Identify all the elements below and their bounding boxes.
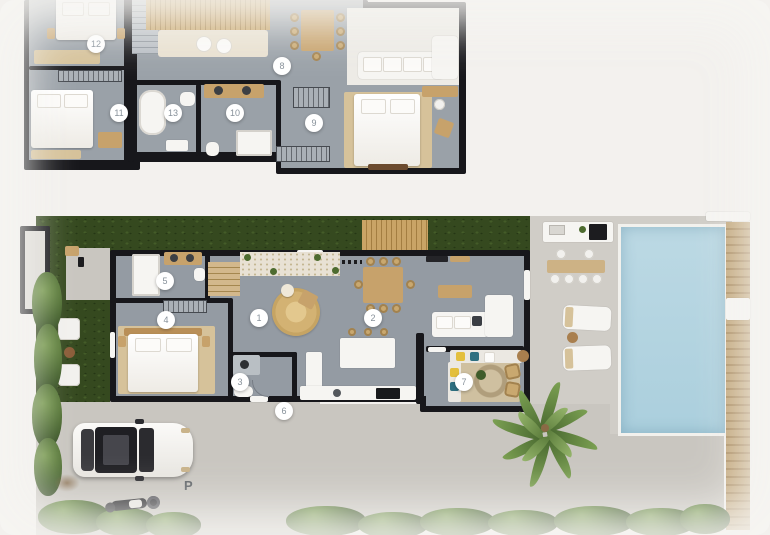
sun-lounger [563, 345, 612, 371]
basin [186, 254, 194, 262]
room-marker-5: 5 [156, 272, 174, 290]
bathtub [139, 90, 166, 135]
bush [488, 510, 558, 535]
dirt-patch [54, 474, 80, 492]
chair [290, 13, 299, 22]
chair [392, 304, 401, 313]
bar-stool [380, 328, 388, 336]
chair [379, 304, 388, 313]
car-windshield [139, 428, 154, 472]
gate-step [65, 246, 79, 256]
car-rear-window [81, 429, 94, 471]
bush [420, 508, 495, 535]
pillow [135, 338, 161, 352]
plant [579, 226, 586, 233]
shower [236, 130, 272, 156]
sun-lounger [562, 305, 611, 331]
tv [426, 256, 448, 262]
room-marker-3: 3 [231, 373, 249, 391]
wardrobe [58, 70, 122, 82]
nightstand [47, 28, 55, 39]
plant [332, 267, 339, 274]
outdoor-chair [550, 274, 560, 284]
staircase [208, 262, 240, 296]
sofa [432, 312, 488, 337]
moto-front-wheel [146, 495, 160, 509]
room-marker-4: 4 [157, 311, 175, 329]
ground-floor-plan: P 5 4 1 2 3 6 7 [18, 212, 752, 535]
room-marker-11: 11 [110, 104, 128, 122]
coffee-table [438, 285, 472, 298]
outdoor-sofa [450, 350, 522, 363]
kitchen-sink [333, 389, 341, 397]
cooktop [376, 388, 400, 399]
bar-stool [348, 328, 356, 336]
bench [31, 150, 81, 159]
nightstand [202, 336, 210, 347]
lamp-post [78, 257, 84, 267]
room-marker-10: 10 [226, 104, 244, 122]
room-marker-7: 7 [455, 373, 473, 391]
floor-plan-canvas: 12 11 13 10 8 9 [0, 0, 770, 535]
bush [554, 506, 634, 535]
deck-louvres [146, 0, 270, 30]
bench [368, 164, 408, 170]
side-table [567, 332, 578, 343]
boundary-wall [706, 212, 750, 221]
wall [416, 333, 424, 404]
outdoor-chair [592, 274, 602, 284]
cushion [454, 316, 471, 329]
chair [336, 13, 345, 22]
pillow [37, 94, 61, 108]
car-headlight [181, 467, 190, 472]
car-headlight [181, 428, 190, 433]
room-marker-8: 8 [273, 57, 291, 75]
bed [31, 90, 93, 148]
toilet [180, 92, 195, 106]
basin [214, 86, 223, 95]
cushion [363, 57, 382, 72]
room-marker-2: 2 [364, 309, 382, 327]
plant [244, 254, 251, 261]
entry-tiles [240, 252, 340, 276]
palm-trunk [541, 424, 549, 432]
chair [354, 280, 363, 289]
lounger-headrest [565, 307, 574, 327]
bar-stool [364, 328, 372, 336]
pillow [88, 2, 110, 16]
basin [170, 254, 178, 262]
desk [422, 86, 458, 97]
plant [270, 268, 277, 275]
chair [392, 257, 401, 266]
coat-hooks [342, 260, 362, 264]
chair [312, 52, 321, 61]
car-sunroof [103, 435, 129, 465]
outdoor-sink [549, 225, 565, 235]
door-gap [428, 347, 446, 352]
chair [366, 257, 375, 266]
wall [196, 84, 201, 156]
upper-floor-plan: 12 11 13 10 8 9 [18, 0, 470, 176]
wardrobe [293, 87, 330, 108]
toilet [194, 268, 205, 281]
window [110, 332, 115, 358]
cushion [472, 316, 482, 326]
pouf [281, 284, 294, 297]
bush [286, 506, 366, 535]
kitchen-island [340, 338, 395, 368]
garden-table [64, 347, 75, 358]
car-mirror [135, 476, 144, 481]
room-marker-9: 9 [305, 114, 323, 132]
outdoor-dining-table [547, 260, 605, 273]
chair [290, 27, 299, 36]
room-marker-13: 13 [164, 104, 182, 122]
vanity [204, 84, 264, 98]
sink [166, 140, 188, 151]
sofa-chaise [485, 295, 513, 337]
lounger-headrest [565, 348, 574, 368]
moto-rear-wheel [105, 502, 116, 513]
bush [358, 512, 428, 535]
parking-label: P [184, 478, 193, 493]
outdoor-chair [584, 249, 594, 259]
desk [98, 132, 122, 148]
cushion [196, 36, 212, 52]
bbq-grill [589, 224, 607, 240]
chair [379, 257, 388, 266]
garden-steps [362, 220, 428, 252]
wardrobe [276, 146, 330, 162]
basin [240, 360, 249, 369]
nightstand [117, 28, 125, 39]
outdoor-chair [556, 249, 566, 259]
lounge-mat [158, 30, 268, 57]
chair [406, 280, 415, 289]
boundary-fence [726, 222, 750, 530]
bed [354, 94, 420, 166]
cushion [470, 352, 479, 361]
dining-table [301, 10, 334, 51]
gate [726, 298, 750, 320]
nightstand [118, 336, 126, 347]
car-mirror [135, 419, 144, 424]
cushion [484, 352, 495, 363]
pillow [166, 338, 192, 352]
bush [680, 504, 730, 534]
outdoor-chair [564, 274, 574, 284]
cushion [436, 316, 453, 329]
sideboard [450, 256, 470, 262]
cushion [403, 57, 422, 72]
chair [336, 41, 345, 50]
window [524, 270, 530, 300]
side-table [517, 350, 529, 362]
kitchen-counter [306, 352, 322, 390]
dresser [34, 50, 100, 64]
shower [132, 254, 160, 296]
wall [292, 352, 297, 402]
room-marker-6: 6 [275, 402, 293, 420]
desk-chair [434, 99, 445, 110]
pillow [390, 99, 415, 114]
bed [128, 334, 198, 392]
pool [618, 224, 728, 436]
pillow [64, 94, 88, 108]
sofa-chaise [432, 36, 458, 79]
garden-armchair [58, 318, 80, 340]
toilet [206, 142, 219, 156]
room-marker-12: 12 [87, 35, 105, 53]
chair [290, 41, 299, 50]
pillow [361, 99, 386, 114]
room-marker-1: 1 [250, 309, 268, 327]
cushion [383, 57, 402, 72]
car [73, 423, 193, 477]
plant [476, 370, 486, 380]
cushion [216, 38, 232, 54]
pillow [62, 2, 84, 16]
bed [56, 0, 116, 40]
dining-table [363, 267, 403, 303]
outdoor-chair [578, 274, 588, 284]
basin [242, 86, 251, 95]
moto-tank [129, 499, 143, 508]
cushion [456, 352, 465, 361]
chair [336, 27, 345, 36]
plant [314, 254, 321, 261]
palm-tree [490, 373, 600, 483]
